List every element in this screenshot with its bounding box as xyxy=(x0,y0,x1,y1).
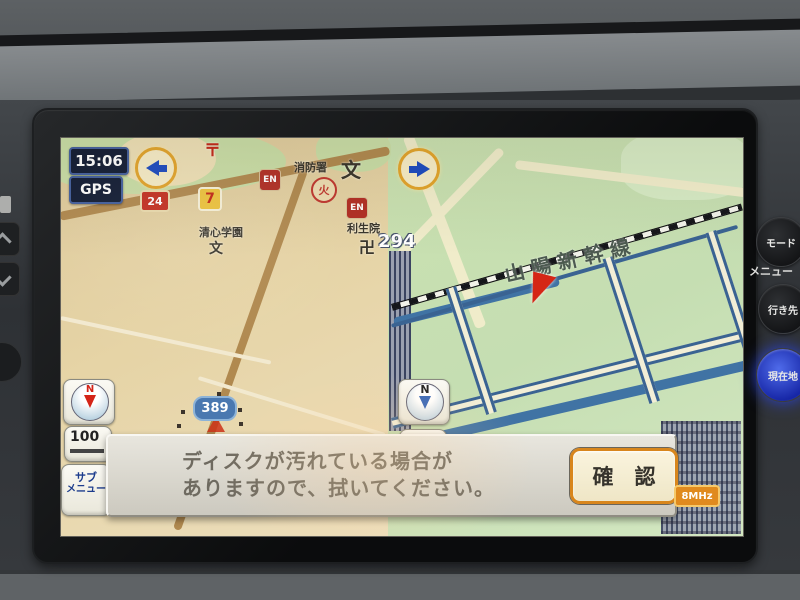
compass-needle-icon xyxy=(84,395,96,408)
submenu-button[interactable]: サブ メニュー xyxy=(61,464,111,516)
scroll-right-button[interactable] xyxy=(398,148,440,190)
compass-needle-icon xyxy=(419,396,431,409)
map-scale-label: 100 xyxy=(70,429,99,445)
disc-warning-dialog: ディスクが汚れている場合が ありますので、拭いてください。 確 認 xyxy=(106,434,677,517)
chevron-down-icon xyxy=(0,268,11,286)
school-icon: 文 xyxy=(209,238,223,258)
fire-station-icon: 火 xyxy=(311,177,337,203)
fire-station-label: 消防署 xyxy=(294,159,327,175)
route-dot xyxy=(239,422,243,426)
volume-up-button[interactable] xyxy=(0,222,20,256)
mhz-status-badge: 8MHz xyxy=(674,485,720,507)
route-badge-24: 24 xyxy=(140,190,170,212)
clock-badge: 15:06 xyxy=(69,147,129,175)
volume-label-partial xyxy=(0,196,11,213)
gas-station-badge: EN xyxy=(259,169,281,191)
compass-north-label: N xyxy=(420,384,429,396)
dashboard-bottom-trim xyxy=(0,574,800,600)
gas-station-badge: EN xyxy=(346,197,368,219)
confirm-button[interactable]: 確 認 xyxy=(570,448,678,504)
arrow-right-icon xyxy=(417,161,430,177)
route-dot xyxy=(181,410,185,414)
scroll-left-button[interactable] xyxy=(135,147,177,189)
submenu-label-line1: サブ xyxy=(62,471,110,484)
compass-button-left[interactable]: N xyxy=(63,379,115,425)
route-badge-7: 7 xyxy=(198,187,222,211)
route-294-label: 294 xyxy=(378,231,416,252)
arrow-right-tail xyxy=(409,166,417,173)
route-dot xyxy=(238,408,242,412)
navigation-screen: 〒 24 7 EN 消防署 火 文 EN 利生院 卍 清心学園 文 389 15… xyxy=(60,137,744,537)
temple-icon: 卍 xyxy=(359,234,375,258)
car-dashboard-photo: 〒 24 7 EN 消防署 火 文 EN 利生院 卍 清心学園 文 389 15… xyxy=(0,0,800,600)
compass-icon: N xyxy=(406,383,444,421)
volume-down-button[interactable] xyxy=(0,262,20,296)
menu-button-label[interactable]: メニュー xyxy=(749,263,793,279)
destination-button[interactable]: 行き先 xyxy=(758,284,800,334)
arrow-left-icon xyxy=(146,160,159,176)
scale-bar-icon xyxy=(70,449,104,453)
dialog-message-line2: ありますので、拭いてください。 xyxy=(182,472,495,501)
mode-button[interactable]: モード xyxy=(756,217,800,267)
compass-button-right[interactable]: N xyxy=(398,379,450,425)
chevron-up-icon xyxy=(0,232,11,250)
map-scale-button[interactable]: 100 xyxy=(64,426,112,462)
dialog-message-line1: ディスクが汚れている場合が xyxy=(182,445,453,474)
route-dot xyxy=(177,424,181,428)
school-icon: 文 xyxy=(341,154,361,183)
compass-north-label: N xyxy=(86,384,94,395)
post-office-icon: 〒 xyxy=(204,137,221,161)
route-badge-389: 389 xyxy=(193,396,237,421)
compass-icon: N xyxy=(71,383,109,421)
arrow-left-tail xyxy=(159,165,167,172)
gps-status-badge: GPS xyxy=(69,176,123,204)
submenu-label-line2: メニュー xyxy=(62,484,110,496)
